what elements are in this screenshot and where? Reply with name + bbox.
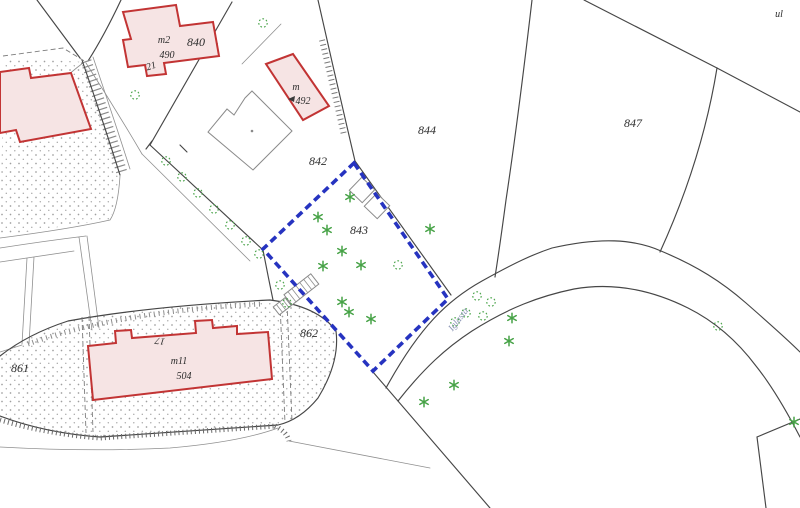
parcel-label-843[interactable]: 843 xyxy=(350,223,368,237)
parcel-label-840[interactable]: 840 xyxy=(187,35,205,49)
parcel-label-842[interactable]: 842 xyxy=(309,154,327,168)
map-canvas: 840 842 843 844 847 861 862 m2 490 21 m … xyxy=(0,0,800,508)
parcel-label-844[interactable]: 844 xyxy=(418,123,436,137)
parcel-label-847[interactable]: 847 xyxy=(624,116,643,130)
building-code-m: m xyxy=(292,82,299,93)
street-prefix-label: ul xyxy=(775,9,783,20)
building-number-492: 492 xyxy=(296,96,311,107)
building-number-490: 490 xyxy=(160,50,175,61)
parcel-label-862[interactable]: 862 xyxy=(300,326,318,340)
parcel-label-861[interactable]: 861 xyxy=(11,361,29,375)
cadastral-map: 840 842 843 844 847 861 862 m2 490 21 m … xyxy=(0,0,800,508)
building-code-m11: m11 xyxy=(171,356,187,367)
building-number-504: 504 xyxy=(177,371,192,382)
building-center-dot xyxy=(251,130,254,133)
building-code-m2: m2 xyxy=(158,35,170,46)
